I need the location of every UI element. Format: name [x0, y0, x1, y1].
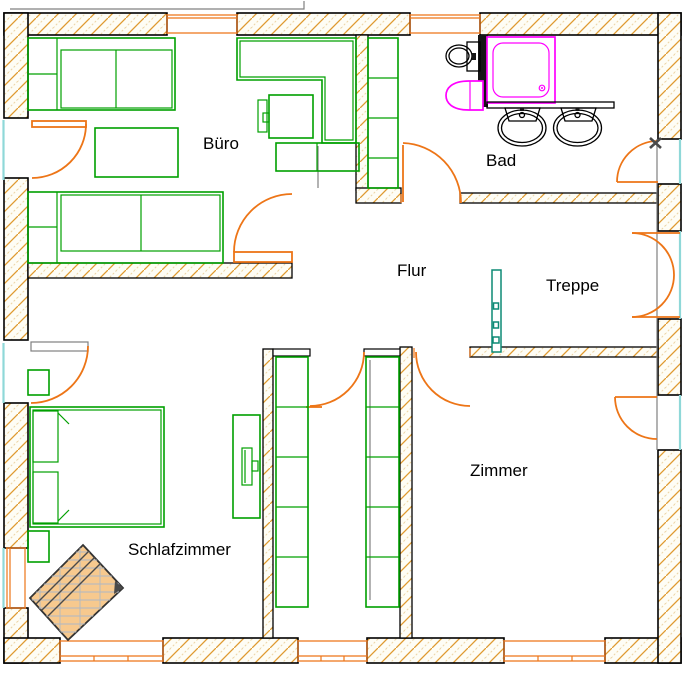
room-label-bad: Bad	[486, 151, 516, 170]
bad-shelf[interactable]	[368, 38, 398, 188]
bed[interactable]	[30, 407, 164, 527]
door-buero-flur[interactable]	[234, 194, 292, 262]
room-label-buero: Büro	[203, 134, 239, 153]
window-top-2	[410, 14, 480, 34]
window-left	[6, 548, 26, 608]
window-bottom-1	[60, 640, 163, 662]
closet-shelf-right[interactable]	[366, 357, 399, 607]
window-bottom-2	[298, 640, 367, 662]
door-schlafzimmer-balcony[interactable]	[31, 342, 88, 403]
shower[interactable]	[487, 37, 555, 103]
window-top-1	[167, 14, 237, 34]
window-bottom-3	[504, 640, 605, 662]
x-marker-icon	[650, 138, 661, 148]
room-label-treppe: Treppe	[546, 276, 599, 295]
nightstand-top[interactable]	[28, 370, 49, 395]
floorplan-canvas[interactable]: Büro Bad Flur Treppe Zimmer Schlafzimmer	[0, 0, 693, 679]
room-label-zimmer: Zimmer	[470, 461, 528, 480]
door-zimmer-balcony[interactable]	[615, 397, 657, 439]
door-bad-flur[interactable]	[401, 143, 461, 203]
interior-walls	[28, 35, 658, 638]
nightstand-bottom[interactable]	[28, 531, 49, 562]
door-closet[interactable]	[306, 352, 364, 407]
desk-chair[interactable]	[258, 95, 313, 138]
sofa-top[interactable]	[28, 38, 175, 110]
rotated-dresser[interactable]	[25, 540, 128, 645]
toilet[interactable]	[446, 42, 484, 71]
door-buero-balcony[interactable]	[32, 121, 86, 178]
closet-shelf-left[interactable]	[276, 357, 308, 607]
bidet[interactable]	[446, 81, 483, 110]
door-zimmer-flur[interactable]	[414, 348, 470, 406]
door-treppe-leaf[interactable]	[492, 270, 501, 352]
sink-left[interactable]	[498, 108, 546, 146]
construction-lines	[10, 1, 657, 600]
sink-right[interactable]	[554, 108, 602, 146]
room-label-flur: Flur	[397, 261, 427, 280]
desk[interactable]	[237, 38, 356, 143]
sofa-bottom[interactable]	[28, 192, 223, 263]
wardrobe[interactable]	[233, 415, 260, 518]
room-label-schlafzimmer: Schlafzimmer	[128, 540, 231, 559]
sideboard[interactable]	[276, 143, 359, 171]
door-treppe-french[interactable]	[632, 233, 680, 317]
coffee-table[interactable]	[95, 128, 178, 177]
